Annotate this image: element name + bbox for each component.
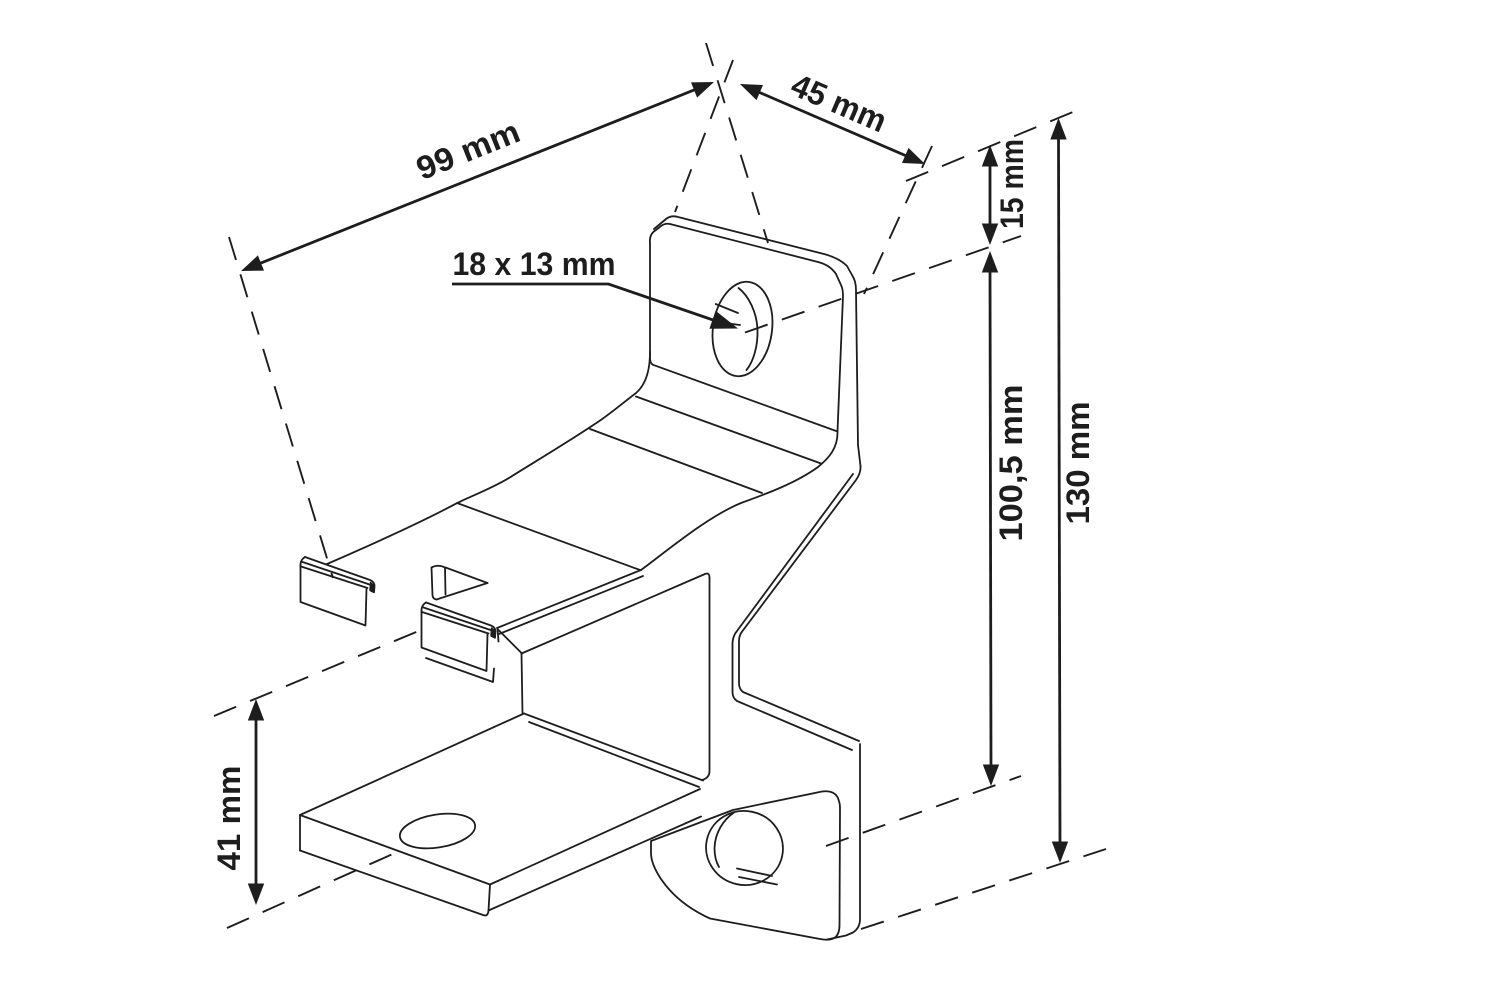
svg-text:100,5 mm: 100,5 mm [993, 385, 1029, 542]
svg-text:18 x 13 mm: 18 x 13 mm [453, 246, 616, 282]
svg-text:130 mm: 130 mm [1060, 402, 1096, 525]
svg-text:15 mm: 15 mm [994, 139, 1030, 229]
svg-text:41 mm: 41 mm [211, 766, 247, 871]
